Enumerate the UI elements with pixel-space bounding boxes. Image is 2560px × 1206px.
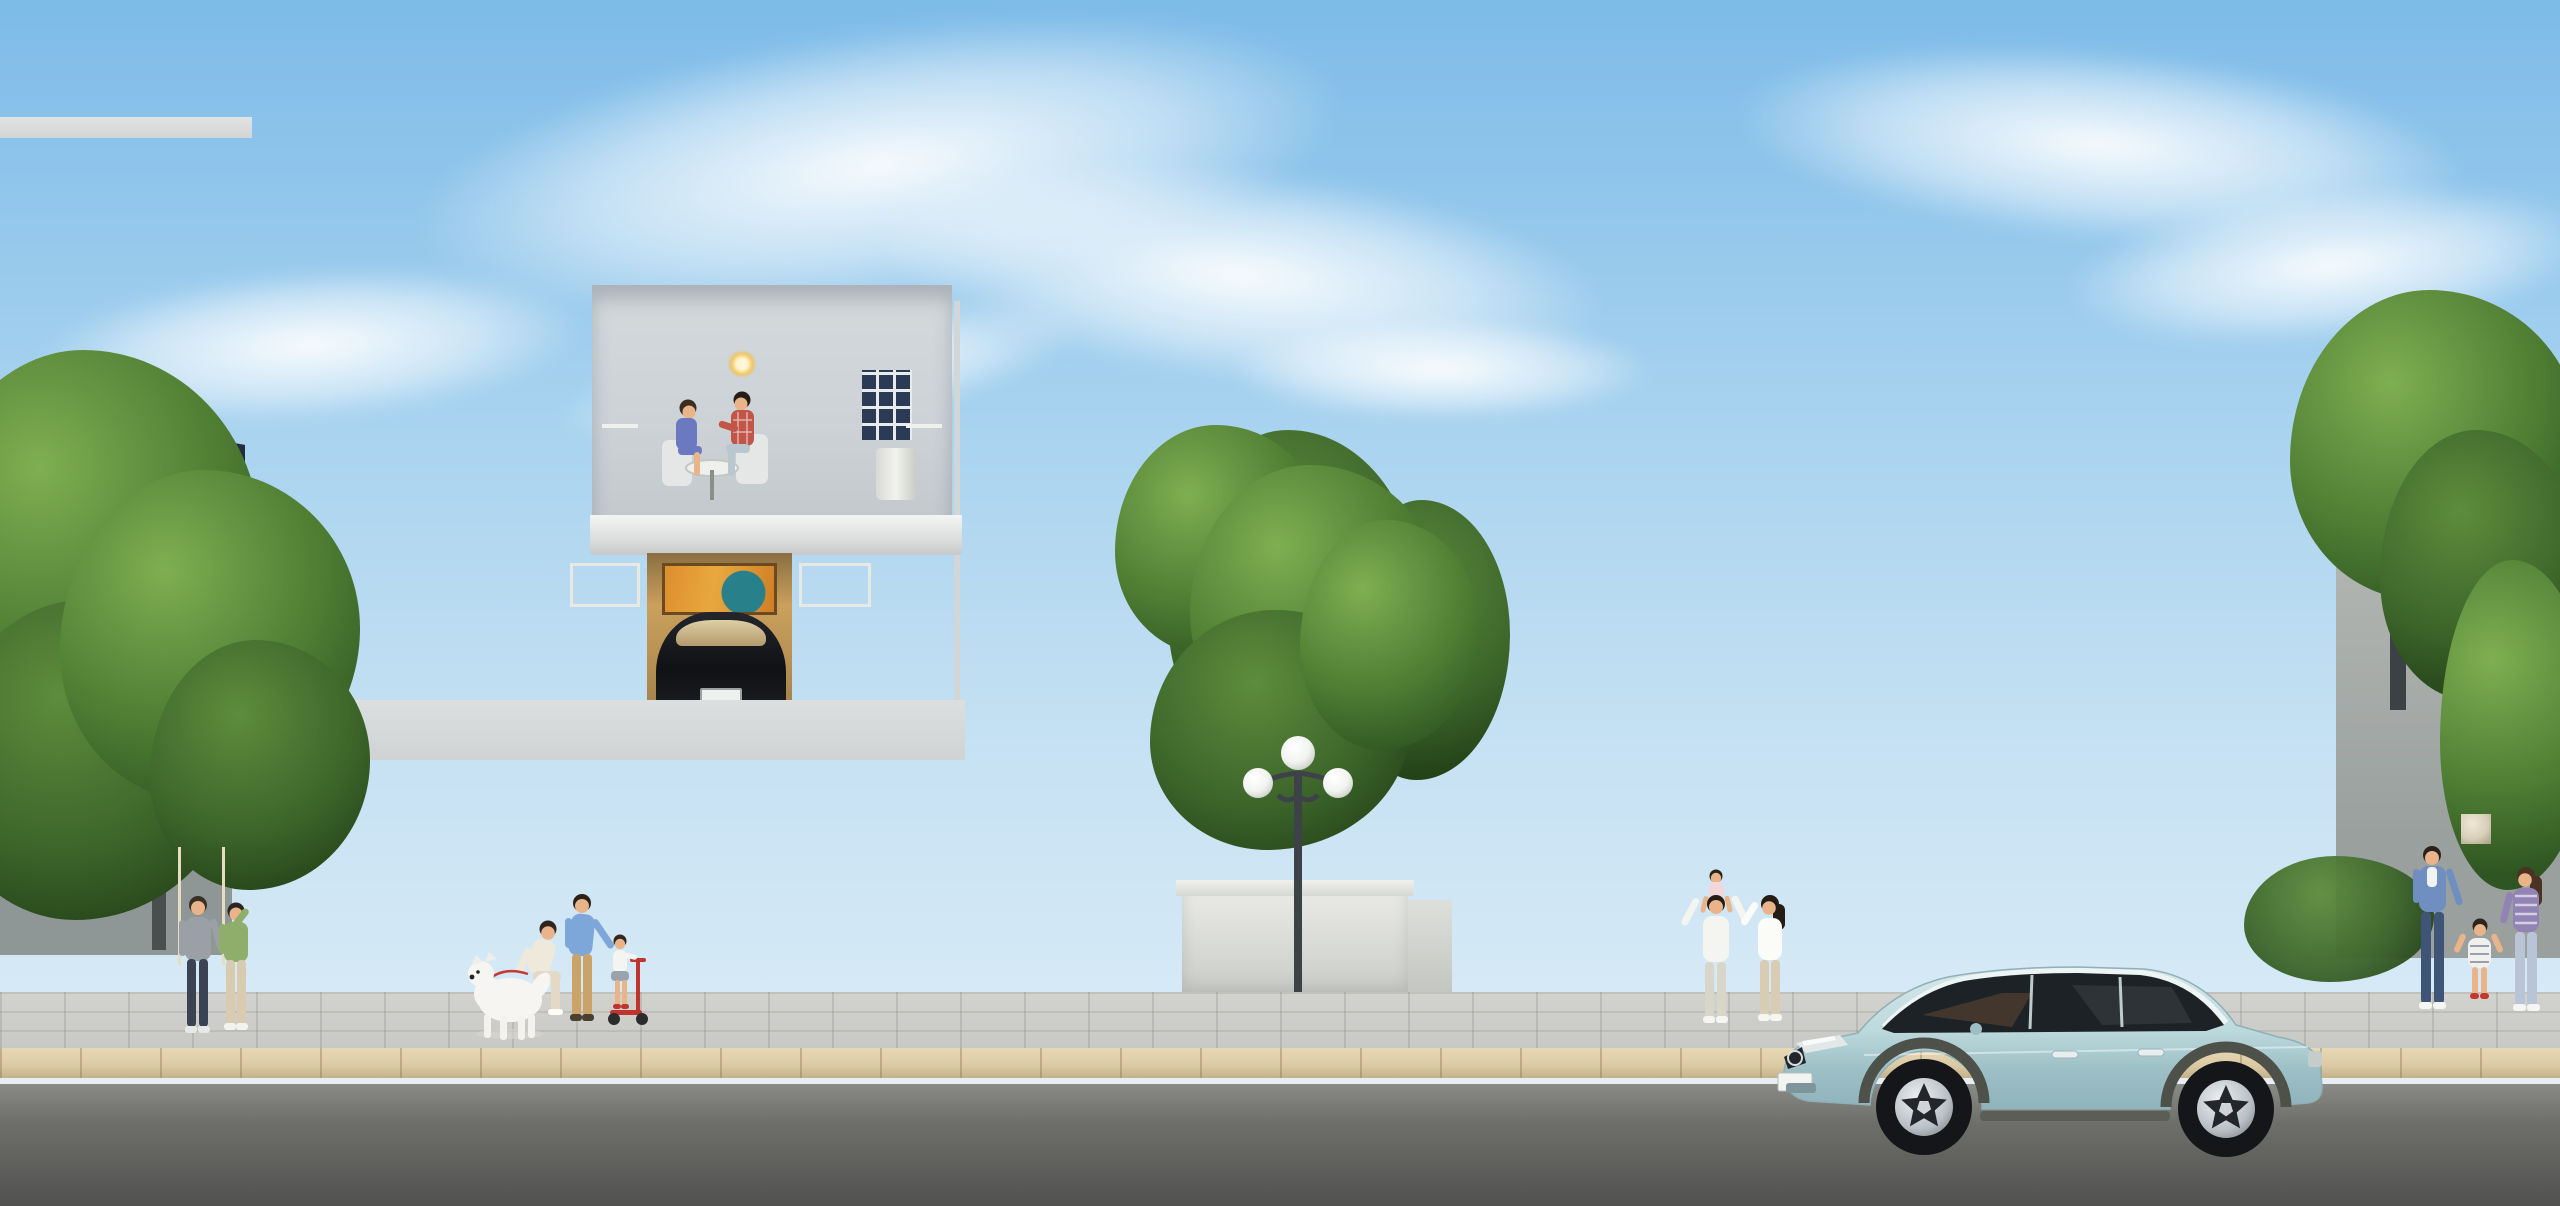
scooter-father-and-girl: [558, 892, 650, 1036]
upper-window: [469, 288, 517, 475]
fence-pillar: [296, 848, 332, 1008]
cypress-tree: [379, 505, 434, 730]
upper-window: [325, 288, 373, 475]
stone-ball-finial: [2461, 814, 2491, 844]
corner-family: [2404, 842, 2558, 1030]
tower-dentils: [6, 102, 246, 117]
main-roof: [196, 6, 966, 256]
tower-cornice-lip: [0, 58, 252, 72]
playground-beam: [2368, 766, 2558, 781]
tower-roof: [28, 16, 220, 64]
fence-pillar: [34, 848, 70, 1008]
folding-door-glass: [799, 563, 871, 607]
upper-window: [397, 288, 445, 475]
elderly-couple: [168, 893, 272, 1043]
road-shadow: [0, 1088, 980, 1206]
cloud: [1230, 320, 1650, 420]
garage-painting: [662, 563, 777, 615]
gate-family: [1678, 868, 1800, 1034]
balcony-pier: [600, 428, 640, 520]
balcony-potted-tree: [862, 360, 928, 452]
gate-pillar: [1046, 842, 1084, 1008]
fence-pillar: [818, 848, 854, 1008]
folding-door-glass: [570, 563, 640, 607]
ground-arched-window: [427, 543, 507, 695]
road-shadow: [1000, 1100, 1520, 1206]
scene: [0, 0, 2560, 1206]
arch-window-fan-muntins: [68, 151, 180, 217]
sphere-lamp: [1430, 810, 1460, 840]
garage-car-rear-window: [676, 620, 766, 646]
sphere-lamp: [1050, 810, 1080, 840]
eave-crown: [205, 251, 965, 277]
sphere-lamp: [1854, 810, 1884, 840]
suv-car: [1772, 915, 2338, 1165]
eave-lip: [205, 238, 965, 251]
balcony-slab: [590, 515, 962, 555]
balcony-planter-pot: [876, 448, 916, 500]
swing-frame-post: [136, 845, 148, 1005]
planter-box-side: [1408, 900, 1452, 992]
cypress-tree: [517, 525, 563, 725]
dog-and-woman: [464, 896, 572, 1044]
sphere-lamp: [2298, 810, 2328, 840]
wall-lantern-icon: [890, 557, 910, 599]
tower-cornice: [0, 72, 252, 102]
